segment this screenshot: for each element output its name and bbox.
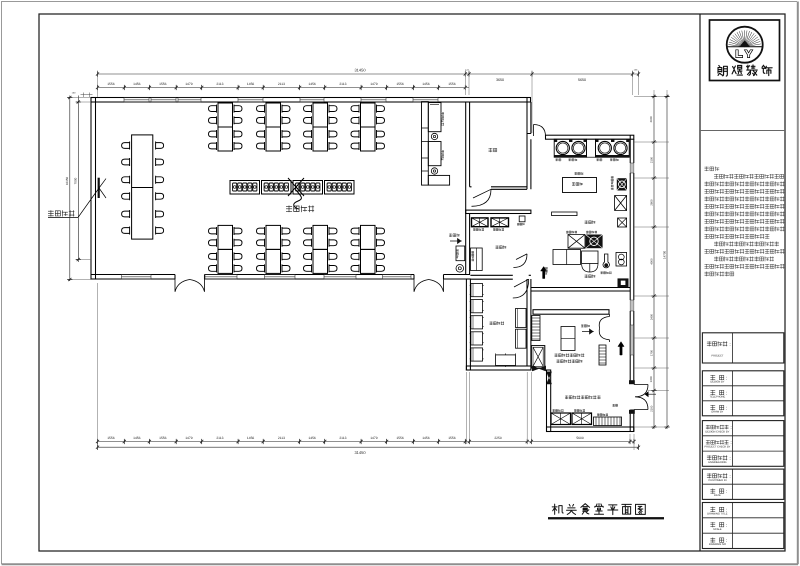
svg-text:1479: 1479: [370, 436, 378, 440]
svg-text:2113: 2113: [216, 436, 223, 440]
svg-text:1456: 1456: [308, 436, 316, 440]
svg-text:31450: 31450: [354, 67, 366, 72]
svg-text:2113: 2113: [278, 82, 285, 86]
svg-text:2100: 2100: [649, 405, 653, 412]
svg-text:PROJECT: PROJECT: [711, 354, 724, 357]
svg-text:2113: 2113: [278, 436, 285, 440]
svg-text:SCALE: SCALE: [713, 528, 722, 531]
svg-text::: :: [726, 406, 727, 412]
svg-text::: :: [726, 523, 727, 529]
svg-text:2100: 2100: [649, 156, 653, 163]
svg-text:1456: 1456: [133, 436, 141, 440]
svg-text:1556: 1556: [396, 436, 404, 440]
svg-text:CUSTOMER IN: CUSTOMER IN: [708, 479, 726, 482]
svg-text:1700: 1700: [649, 349, 653, 356]
svg-text:1456: 1456: [422, 82, 430, 86]
svg-text:1556: 1556: [396, 82, 404, 86]
svg-text::: :: [729, 456, 730, 462]
svg-text:2113: 2113: [339, 436, 346, 440]
svg-text::: :: [726, 391, 727, 397]
svg-text::: :: [730, 425, 731, 431]
svg-text:DESIGN CHECK BY: DESIGN CHECK BY: [705, 431, 729, 434]
svg-text:DATE: DATE: [714, 494, 721, 497]
svg-text:1456: 1456: [422, 436, 430, 440]
svg-text:2113: 2113: [339, 82, 346, 86]
svg-text:3650: 3650: [496, 78, 504, 82]
svg-text:1556: 1556: [448, 82, 456, 86]
svg-text::: :: [726, 538, 727, 544]
svg-text:1456: 1456: [308, 82, 316, 86]
svg-text:TELEPHONE: TELEPHONE: [710, 396, 726, 399]
svg-text:1556: 1556: [159, 82, 167, 86]
svg-text:1479: 1479: [370, 82, 378, 86]
svg-text:14700: 14700: [662, 250, 666, 259]
svg-text:DRAW BY: DRAW BY: [711, 411, 723, 414]
svg-text:DRAWING TITLE: DRAWING TITLE: [707, 513, 727, 516]
svg-text:2800: 2800: [649, 199, 653, 206]
svg-text:1479: 1479: [185, 436, 193, 440]
svg-text:31450: 31450: [354, 450, 366, 455]
svg-text:7000: 7000: [74, 177, 78, 184]
svg-text:1456: 1456: [247, 436, 255, 440]
svg-text::: :: [729, 474, 730, 480]
svg-text:2113: 2113: [216, 82, 223, 86]
svg-text:DESIGN BY: DESIGN BY: [710, 381, 724, 384]
svg-text:1556: 1556: [159, 436, 167, 440]
svg-text:DRAWING NO: DRAWING NO: [709, 543, 726, 546]
svg-text:1456: 1456: [247, 82, 255, 86]
svg-text::: :: [730, 440, 731, 446]
svg-text:1556: 1556: [107, 436, 115, 440]
svg-text:2400: 2400: [649, 313, 653, 320]
svg-text:ENGINEERING: ENGINEERING: [708, 461, 726, 464]
svg-text::: :: [726, 489, 727, 495]
svg-text:4000: 4000: [649, 258, 653, 265]
svg-text::: :: [729, 342, 730, 348]
svg-text:1556: 1556: [107, 82, 115, 86]
svg-text::: :: [726, 376, 727, 382]
svg-text:1479: 1479: [185, 82, 193, 86]
svg-text:5600: 5600: [576, 436, 584, 440]
svg-text:1300: 1300: [649, 376, 653, 383]
svg-text:2600: 2600: [649, 116, 653, 123]
svg-text:5650: 5650: [578, 78, 586, 82]
svg-text:PROJECT CHECK BY: PROJECT CHECK BY: [704, 446, 730, 449]
svg-text:1556: 1556: [448, 436, 456, 440]
svg-text:1456: 1456: [133, 82, 141, 86]
svg-text:10350: 10350: [65, 176, 69, 185]
svg-text:2250: 2250: [494, 436, 502, 440]
